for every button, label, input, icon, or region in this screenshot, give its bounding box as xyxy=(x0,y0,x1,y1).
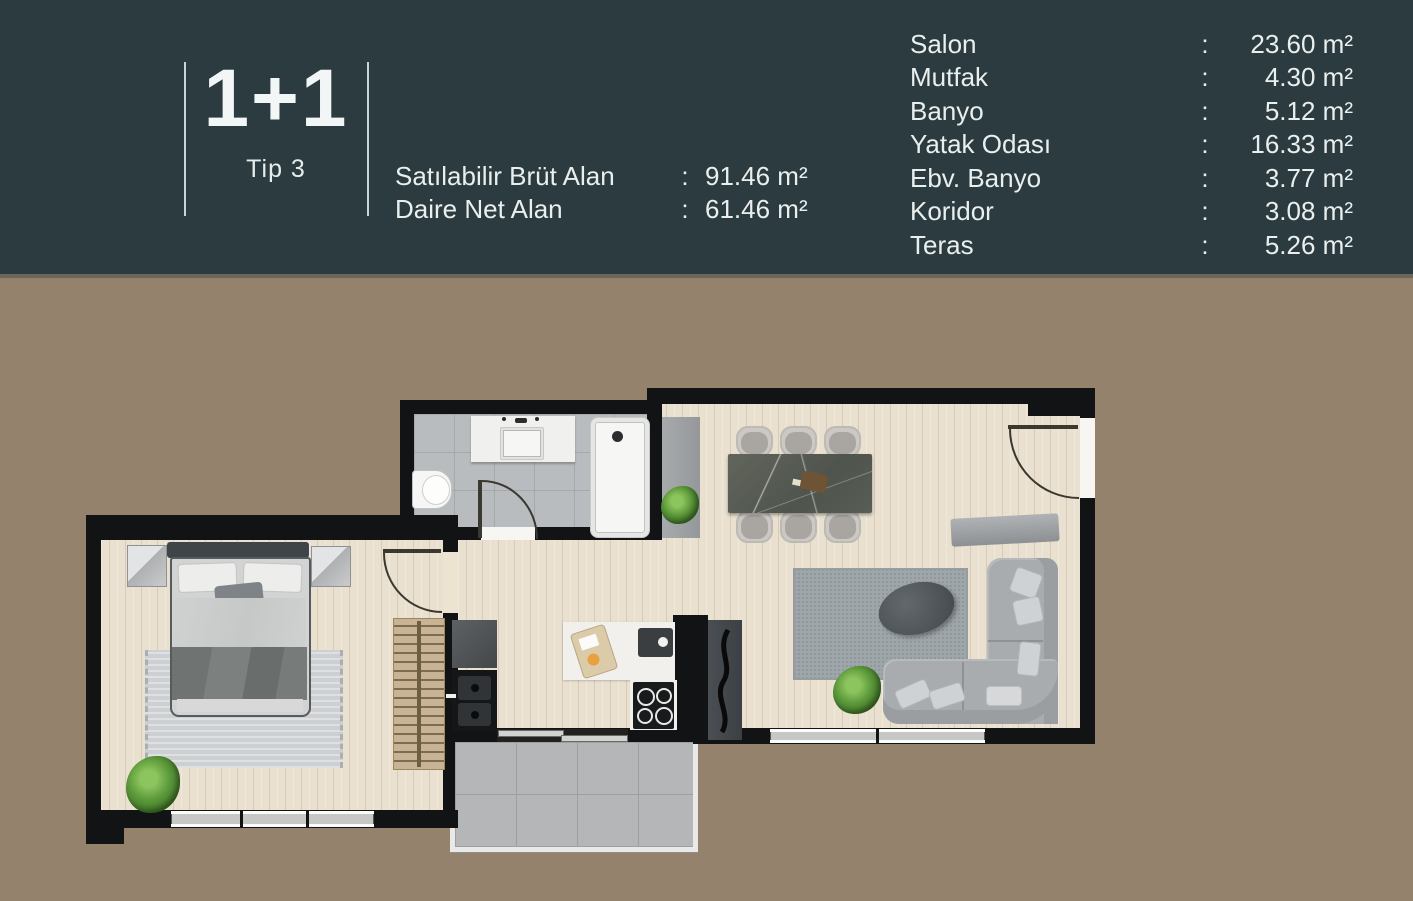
wall-kitchen-right xyxy=(673,615,708,742)
nightstand xyxy=(127,545,167,587)
wardrobe-rack xyxy=(393,618,445,770)
bed xyxy=(170,557,311,717)
wall-bathroom-top xyxy=(400,400,658,414)
wall-living-top xyxy=(658,388,1080,404)
stove-cooktop xyxy=(633,682,674,729)
burner-icon xyxy=(655,707,673,725)
bed-blanket xyxy=(172,647,307,700)
bed-headboard xyxy=(167,542,309,558)
dining-chair xyxy=(824,509,861,543)
tv-bench xyxy=(708,620,742,740)
kitchen-cabinet xyxy=(452,620,497,668)
nightstand xyxy=(311,546,351,587)
wall-bedroom-corner xyxy=(86,810,124,844)
bathroom-sink xyxy=(500,427,544,460)
dining-chair xyxy=(736,509,773,543)
sofa-pillow xyxy=(1016,641,1041,677)
burner-icon xyxy=(637,688,655,706)
dining-chair xyxy=(780,509,817,543)
bed-duvet xyxy=(173,598,306,648)
burner-icon xyxy=(656,688,672,704)
terrace xyxy=(450,742,698,852)
wardrobe-rail xyxy=(417,621,421,767)
sink-drain-icon xyxy=(471,711,479,719)
terrace-sliding-door xyxy=(497,729,628,742)
vanity-knob-icon xyxy=(502,417,506,421)
sofa-cushion xyxy=(986,686,1022,706)
table-centerpiece xyxy=(799,470,828,493)
entrance-door-opening xyxy=(1080,418,1095,498)
wall-entry-step xyxy=(1028,404,1080,416)
kitchen-sink-unit xyxy=(452,670,497,731)
wall-bedroom-left xyxy=(86,515,101,830)
toilet xyxy=(412,470,452,509)
living-window xyxy=(770,729,985,743)
wall-bathroom-left xyxy=(400,400,414,540)
dining-table xyxy=(728,454,872,513)
bed-sheet xyxy=(177,699,303,712)
vanity-knob-icon xyxy=(535,417,539,421)
console-sideboard xyxy=(950,513,1059,547)
sofa-seam xyxy=(962,662,964,710)
bedroom-window xyxy=(171,811,374,827)
kitchen-faucet-icon xyxy=(446,694,456,698)
faucet-icon xyxy=(515,418,527,423)
bathtub xyxy=(590,417,650,538)
bathtub-drain-icon xyxy=(612,431,623,442)
bedroom-door-opening xyxy=(443,552,458,613)
tv-icon xyxy=(720,630,728,732)
burner-icon xyxy=(637,708,653,724)
sink-drain-icon xyxy=(471,684,479,692)
coffee-machine xyxy=(638,628,673,657)
floor-plan xyxy=(0,278,1413,901)
